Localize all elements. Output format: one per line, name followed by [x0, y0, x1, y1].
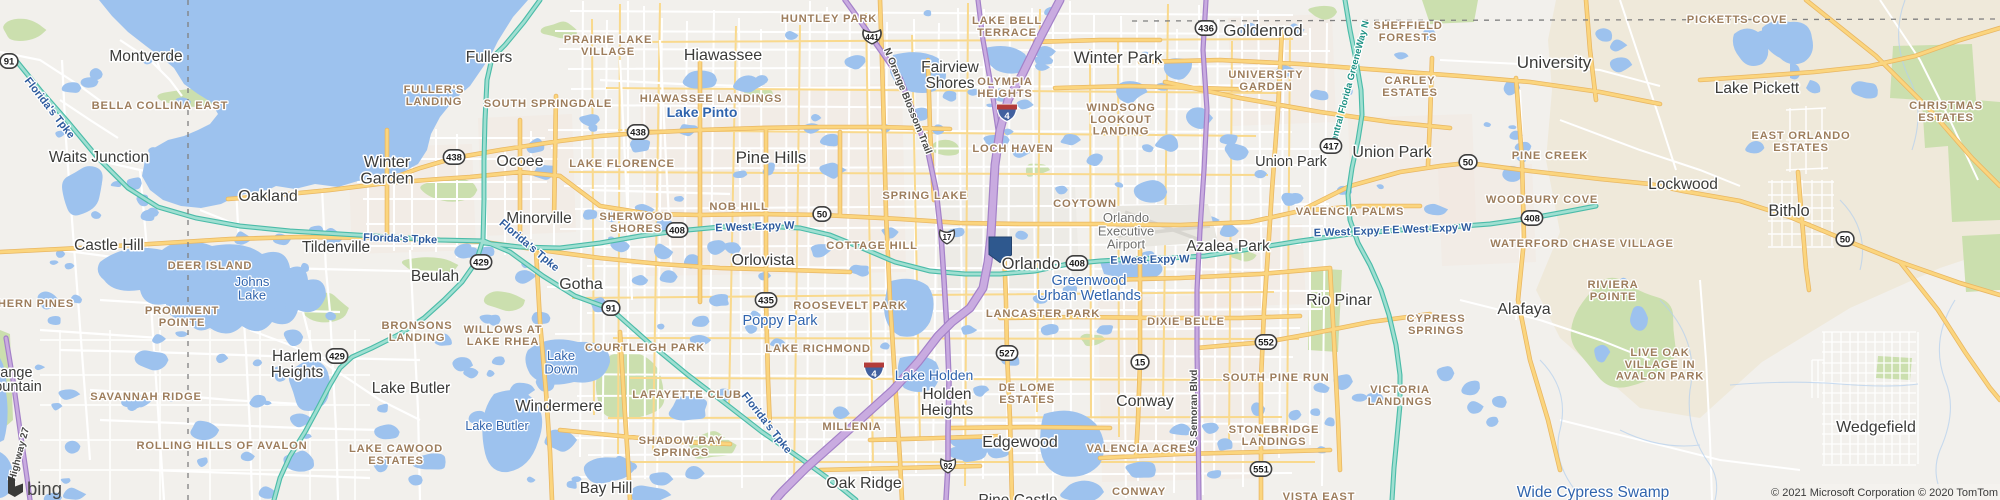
svg-text:HUNTLEY PARK: HUNTLEY PARK	[781, 13, 877, 25]
svg-text:COURTLEIGH PARK: COURTLEIGH PARK	[585, 342, 705, 354]
svg-text:Bithlo: Bithlo	[1768, 202, 1809, 220]
svg-text:LAFAYETTE CLUB: LAFAYETTE CLUB	[632, 389, 742, 401]
svg-text:Lake Holden: Lake Holden	[895, 367, 974, 383]
svg-text:Wedgefield: Wedgefield	[1836, 419, 1916, 436]
svg-text:ROOSEVELT PARK: ROOSEVELT PARK	[793, 300, 906, 312]
svg-text:SHERWOODSHORES: SHERWOODSHORES	[599, 211, 672, 235]
svg-text:HoldenHeights: HoldenHeights	[921, 386, 974, 419]
svg-text:LANCASTER PARK: LANCASTER PARK	[986, 308, 1100, 320]
svg-text:91: 91	[4, 56, 15, 67]
svg-text:FULLER'SLANDING: FULLER'SLANDING	[404, 84, 465, 108]
svg-text:VISTA EAST: VISTA EAST	[1283, 491, 1356, 500]
svg-text:SOUTH PINE RUN: SOUTH PINE RUN	[1223, 372, 1330, 384]
svg-text:LAKE FLORENCE: LAKE FLORENCE	[569, 158, 675, 170]
svg-text:NOB HILL: NOB HILL	[709, 201, 768, 213]
svg-text:50: 50	[817, 209, 828, 220]
svg-text:436: 436	[1198, 23, 1214, 34]
svg-text:COYTOWN: COYTOWN	[1053, 198, 1117, 210]
svg-text:SOUTH SPRINGDALE: SOUTH SPRINGDALE	[484, 98, 612, 110]
svg-text:BELLA COLLINA EAST: BELLA COLLINA EAST	[92, 100, 229, 112]
svg-text:527: 527	[999, 348, 1015, 359]
svg-text:Winter Park: Winter Park	[1074, 48, 1163, 67]
svg-text:CONWAY: CONWAY	[1112, 486, 1166, 498]
svg-text:17: 17	[943, 233, 952, 242]
svg-text:LAKE BELLTERRACE: LAKE BELLTERRACE	[972, 15, 1042, 39]
svg-text:Lockwood: Lockwood	[1648, 176, 1718, 193]
svg-text:VICTORIALANDINGS: VICTORIALANDINGS	[1368, 384, 1433, 408]
svg-text:HERN PINES: HERN PINES	[0, 298, 74, 310]
svg-text:SAVANNAH RIDGE: SAVANNAH RIDGE	[90, 391, 201, 403]
svg-text:CARLEYESTATES: CARLEYESTATES	[1382, 75, 1438, 99]
svg-text:WinterGarden: WinterGarden	[360, 154, 413, 187]
svg-text:ROLLING HILLS OF AVALON: ROLLING HILLS OF AVALON	[136, 440, 307, 452]
svg-text:RIVIERAPOINTE: RIVIERAPOINTE	[1588, 279, 1639, 303]
svg-text:GreenwoodUrban Wetlands: GreenwoodUrban Wetlands	[1037, 273, 1141, 304]
svg-text:VALENCIA PALMS: VALENCIA PALMS	[1296, 206, 1405, 218]
svg-text:441: 441	[865, 33, 879, 42]
svg-text:429: 429	[473, 257, 489, 268]
svg-text:WATERFORD CHASE VILLAGE: WATERFORD CHASE VILLAGE	[1490, 238, 1674, 250]
svg-text:Azalea Park: Azalea Park	[1186, 238, 1270, 255]
svg-text:DEER ISLAND: DEER ISLAND	[168, 260, 253, 272]
svg-text:Montverde: Montverde	[109, 48, 182, 65]
svg-text:435: 435	[758, 295, 775, 306]
svg-text:4: 4	[1004, 111, 1010, 122]
svg-text:DE LOMEESTATES: DE LOMEESTATES	[999, 382, 1056, 406]
svg-text:COTTAGE HILL: COTTAGE HILL	[826, 240, 917, 252]
svg-text:Lake Butler: Lake Butler	[372, 380, 450, 397]
svg-text:VALENCIA ACRES: VALENCIA ACRES	[1087, 443, 1196, 455]
svg-text:Windermere: Windermere	[515, 398, 602, 415]
svg-text:91: 91	[606, 303, 617, 314]
svg-text:Lake Pinto: Lake Pinto	[667, 104, 738, 120]
svg-text:E West Expy W: E West Expy W	[1110, 253, 1190, 266]
svg-text:BRONSONSLANDING: BRONSONSLANDING	[381, 320, 452, 344]
svg-text:50: 50	[1840, 234, 1851, 245]
svg-text:MILLENIA: MILLENIA	[822, 421, 881, 433]
svg-text:Hiawassee: Hiawassee	[684, 47, 762, 64]
svg-text:LakeDown: LakeDown	[544, 348, 577, 376]
svg-text:FairviewShores: FairviewShores	[921, 59, 980, 92]
svg-text:University: University	[1517, 53, 1592, 72]
svg-text:WINDSONGLOOKOUTLANDING: WINDSONGLOOKOUTLANDING	[1086, 102, 1155, 138]
svg-text:OLYMPIAHEIGHTS: OLYMPIAHEIGHTS	[977, 76, 1033, 100]
svg-text:Castle Hill: Castle Hill	[74, 237, 144, 254]
svg-text:WILLOWS ATLAKE RHEA: WILLOWS ATLAKE RHEA	[464, 324, 543, 348]
svg-text:438: 438	[630, 127, 646, 138]
svg-text:CHRISTMASESTATES: CHRISTMASESTATES	[1909, 100, 1983, 124]
svg-text:15: 15	[1135, 357, 1146, 368]
svg-text:SPRING LAKE: SPRING LAKE	[882, 190, 967, 202]
svg-text:408: 408	[1069, 258, 1085, 269]
svg-text:LAKE RICHMOND: LAKE RICHMOND	[765, 343, 871, 355]
svg-text:Beulah: Beulah	[411, 268, 459, 285]
svg-text:Ocoee: Ocoee	[496, 153, 543, 170]
svg-text:PINE CREEK: PINE CREEK	[1512, 150, 1588, 162]
svg-text:Lake Pickett: Lake Pickett	[1715, 80, 1800, 97]
svg-text:Oakland: Oakland	[238, 188, 298, 205]
svg-text:HarlemHeights: HarlemHeights	[271, 348, 324, 381]
svg-text:Pine Castle: Pine Castle	[978, 492, 1057, 500]
svg-text:Lake Butler: Lake Butler	[465, 419, 528, 433]
svg-text:WOODBURY COVE: WOODBURY COVE	[1486, 194, 1598, 206]
svg-text:UNIVERSITYGARDEN: UNIVERSITYGARDEN	[1228, 69, 1303, 93]
svg-text:CYPRESSSPRINGS: CYPRESSSPRINGS	[1406, 313, 1465, 337]
svg-text:417: 417	[1323, 141, 1339, 152]
svg-text:92: 92	[944, 462, 953, 471]
svg-text:© 2021 Microsoft Corporation ©: © 2021 Microsoft Corporation © 2020 TomT…	[1771, 487, 1998, 499]
svg-text:Rio Pinar: Rio Pinar	[1306, 292, 1372, 309]
svg-text:Tildenville: Tildenville	[302, 239, 370, 256]
svg-text:4: 4	[871, 369, 877, 380]
svg-text:Union Park: Union Park	[1352, 144, 1432, 161]
svg-text:Goldenrod: Goldenrod	[1223, 21, 1302, 40]
svg-text:DIXIE BELLE: DIXIE BELLE	[1147, 316, 1225, 328]
svg-text:SHEFFIELDFORESTS: SHEFFIELDFORESTS	[1373, 20, 1442, 44]
svg-text:Pine Hills: Pine Hills	[736, 148, 807, 167]
svg-text:Orlando: Orlando	[1002, 255, 1061, 273]
svg-text:Conway: Conway	[1116, 393, 1174, 410]
svg-text:50: 50	[1463, 157, 1474, 168]
svg-text:Alafaya: Alafaya	[1497, 301, 1550, 318]
svg-text:STONEBRIDGELANDINGS: STONEBRIDGELANDINGS	[1229, 424, 1320, 448]
svg-text:S Semoran Blvd: S Semoran Blvd	[1189, 370, 1200, 447]
svg-text:Bay Hill: Bay Hill	[580, 480, 633, 497]
svg-text:Orlovista: Orlovista	[731, 252, 794, 269]
svg-text:Union Park: Union Park	[1255, 154, 1327, 170]
svg-text:HIAWASSEE LANDINGS: HIAWASSEE LANDINGS	[640, 93, 782, 105]
svg-text:Oak Ridge: Oak Ridge	[826, 475, 902, 492]
svg-text:552: 552	[1258, 337, 1274, 348]
svg-text:PICKETTS COVE: PICKETTS COVE	[1687, 14, 1788, 26]
svg-text:JohnsLake: JohnsLake	[235, 274, 270, 302]
svg-text:438: 438	[446, 152, 462, 163]
svg-text:Waits Junction: Waits Junction	[49, 149, 149, 166]
svg-text:429: 429	[329, 351, 345, 362]
svg-text:Edgewood: Edgewood	[982, 434, 1058, 451]
svg-text:408: 408	[1524, 213, 1540, 224]
svg-text:Wide Cypress Swamp: Wide Cypress Swamp	[1517, 484, 1669, 500]
svg-text:408: 408	[669, 225, 685, 236]
svg-text:551: 551	[1253, 464, 1270, 475]
svg-text:Fullers: Fullers	[466, 49, 513, 66]
svg-text:Gotha: Gotha	[559, 276, 603, 293]
svg-text:LOCH HAVEN: LOCH HAVEN	[972, 143, 1053, 155]
svg-text:Poppy Park: Poppy Park	[743, 313, 819, 329]
svg-text:Minorville: Minorville	[506, 210, 571, 227]
svg-text:bing: bing	[27, 478, 62, 499]
